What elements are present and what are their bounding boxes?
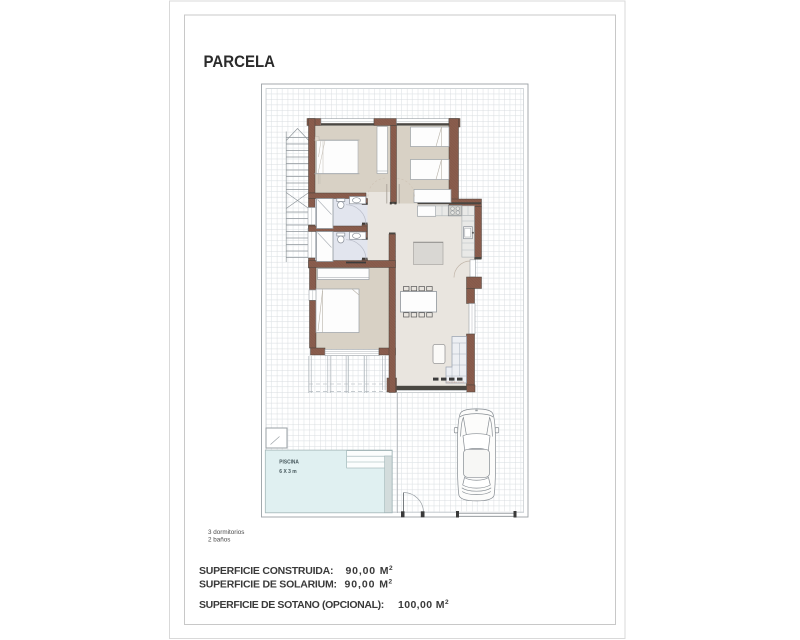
svg-text:2 baños: 2 baños — [208, 536, 230, 543]
svg-text:SUPERFICIE DE SOLARIUM:: SUPERFICIE DE SOLARIUM: — [199, 579, 337, 591]
svg-text:3 dormitorios: 3 dormitorios — [208, 529, 244, 536]
svg-text:90,00 M: 90,00 M — [345, 579, 389, 591]
svg-text:SUPERFICIE DE SOTANO (OPCIONAL: SUPERFICIE DE SOTANO (OPCIONAL): — [199, 599, 384, 611]
svg-text:2: 2 — [389, 565, 393, 572]
svg-text:PARCELA: PARCELA — [204, 52, 276, 71]
svg-text:PISCINA: PISCINA — [279, 459, 299, 465]
svg-text:6 X 3 m: 6 X 3 m — [279, 469, 296, 475]
svg-text:SUPERFICIE CONSTRUIDA:: SUPERFICIE CONSTRUIDA: — [199, 565, 334, 577]
svg-text:2: 2 — [445, 599, 449, 606]
svg-text:Pergola mad.: Pergola mad. — [447, 380, 465, 384]
svg-text:2: 2 — [389, 579, 393, 586]
svg-text:100,00 M: 100,00 M — [398, 599, 445, 611]
svg-text:90,00 M: 90,00 M — [346, 565, 389, 577]
